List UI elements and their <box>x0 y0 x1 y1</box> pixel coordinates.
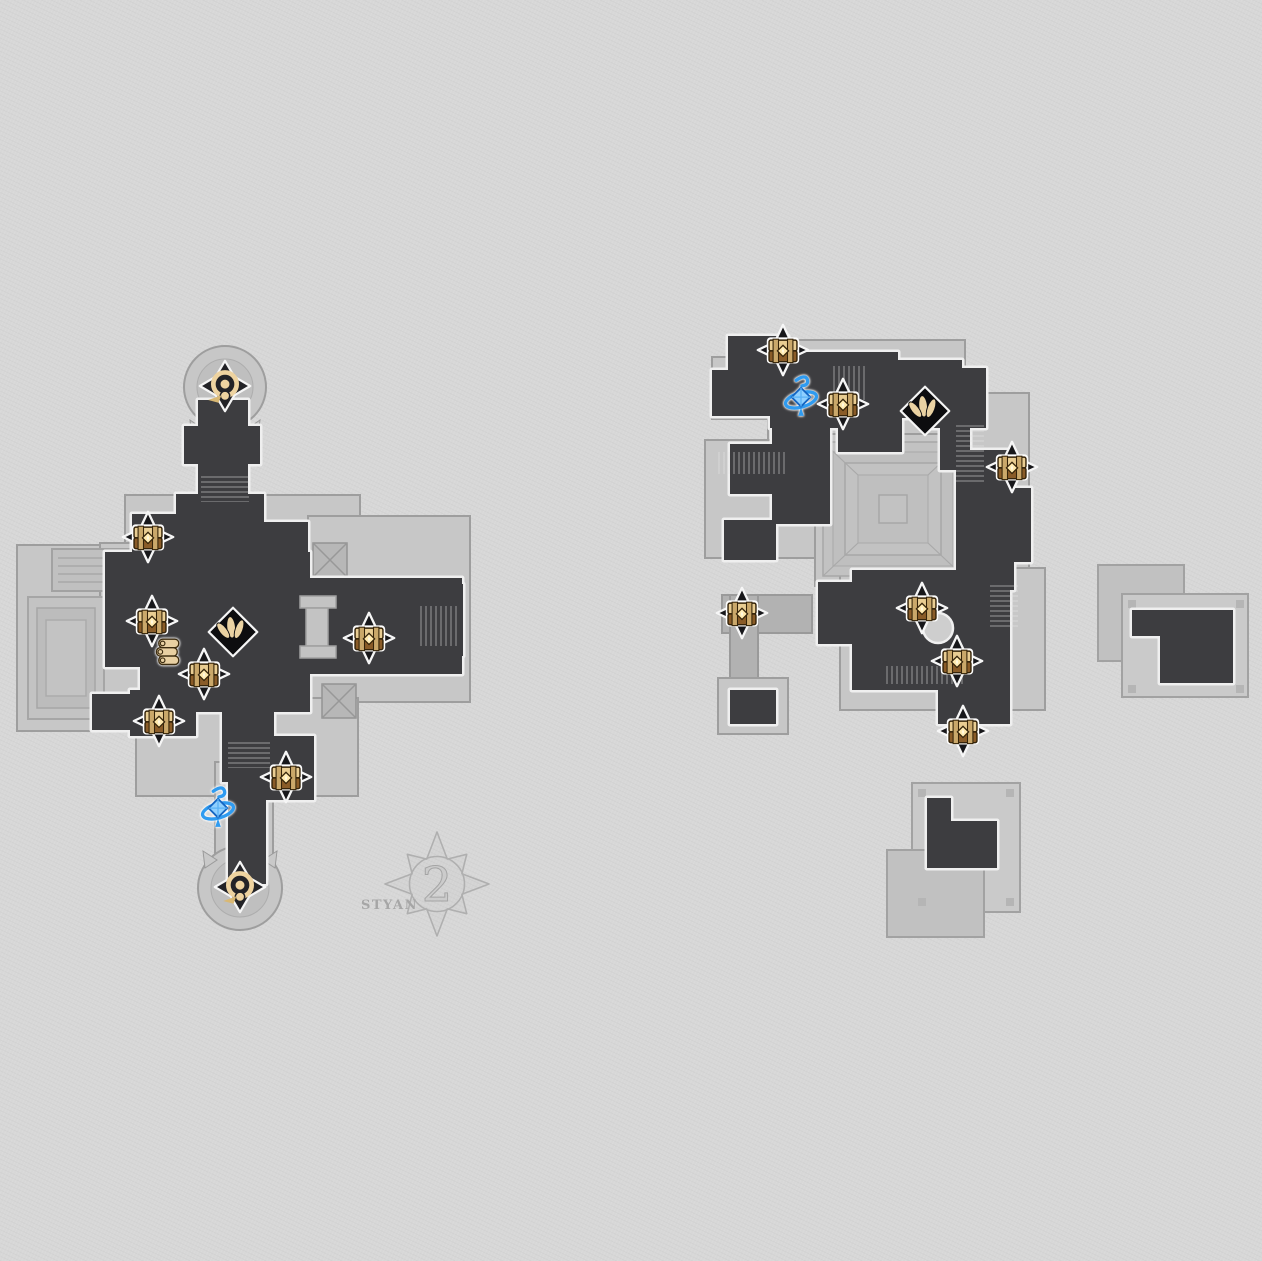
treasure-chest-glyph <box>715 586 769 640</box>
treasure-chest-glyph <box>816 377 870 431</box>
treasure-chest-glyph <box>342 611 396 665</box>
warp-portal-glyph <box>188 780 248 840</box>
treasure-chest-glyph <box>121 510 175 564</box>
teleport-anchor-glyph <box>212 859 268 915</box>
marker-layer <box>0 0 1262 1261</box>
treasure-chest-glyph <box>132 694 186 748</box>
treasure-chest-glyph <box>895 581 949 635</box>
teleport-anchor-glyph <box>197 358 253 414</box>
warp-trotter-glyph <box>897 383 953 439</box>
warp-trotter-glyph <box>205 604 261 660</box>
treasure-chest-glyph <box>936 704 990 758</box>
treasure-chest-glyph <box>259 750 313 804</box>
treasure-chest-glyph <box>985 440 1039 494</box>
map-viewport[interactable]: 2 STYAN <box>0 0 1262 1261</box>
treasure-chest-glyph <box>930 634 984 688</box>
